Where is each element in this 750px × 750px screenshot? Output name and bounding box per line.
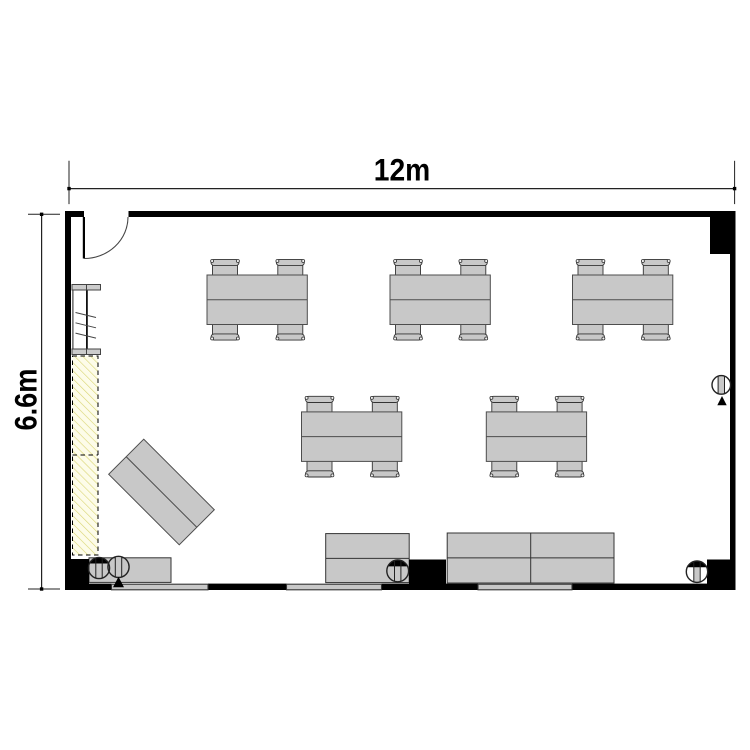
svg-text:6.6m: 6.6m <box>8 369 44 431</box>
svg-text:12m: 12m <box>374 152 431 188</box>
